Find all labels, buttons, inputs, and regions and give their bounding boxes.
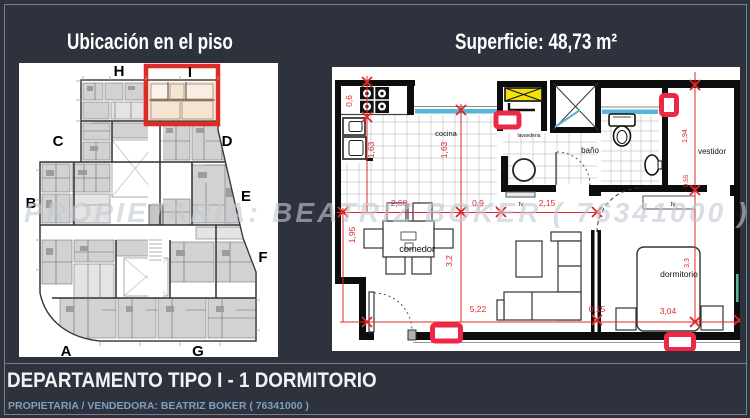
svg-text:1,63: 1,63 [366, 141, 376, 158]
svg-text:vestidor: vestidor [698, 147, 726, 156]
svg-text:comedor: comedor [399, 244, 435, 255]
svg-text:3,3: 3,3 [684, 258, 691, 268]
svg-text:F: F [258, 249, 267, 266]
svg-text:1,94: 1,94 [682, 129, 689, 143]
svg-text:5,22: 5,22 [470, 304, 487, 314]
svg-text:lavanderia: lavanderia [517, 133, 540, 139]
svg-text:0,55: 0,55 [683, 174, 690, 187]
svg-text:I: I [188, 64, 192, 81]
svg-text:3,04: 3,04 [660, 306, 677, 316]
svg-text:0,15: 0,15 [589, 304, 606, 314]
svg-text:0,6: 0,6 [344, 95, 354, 107]
svg-text:1,63: 1,63 [439, 141, 449, 158]
svg-text:baño: baño [581, 146, 599, 155]
svg-text:dormitorio: dormitorio [660, 269, 698, 279]
svg-text:cocina: cocina [435, 129, 458, 138]
svg-text:D: D [222, 133, 233, 150]
svg-text:C: C [53, 133, 64, 150]
svg-text:A: A [61, 343, 72, 357]
svg-text:3,2: 3,2 [444, 255, 454, 267]
svg-text:H: H [114, 63, 125, 80]
svg-text:G: G [192, 343, 204, 357]
